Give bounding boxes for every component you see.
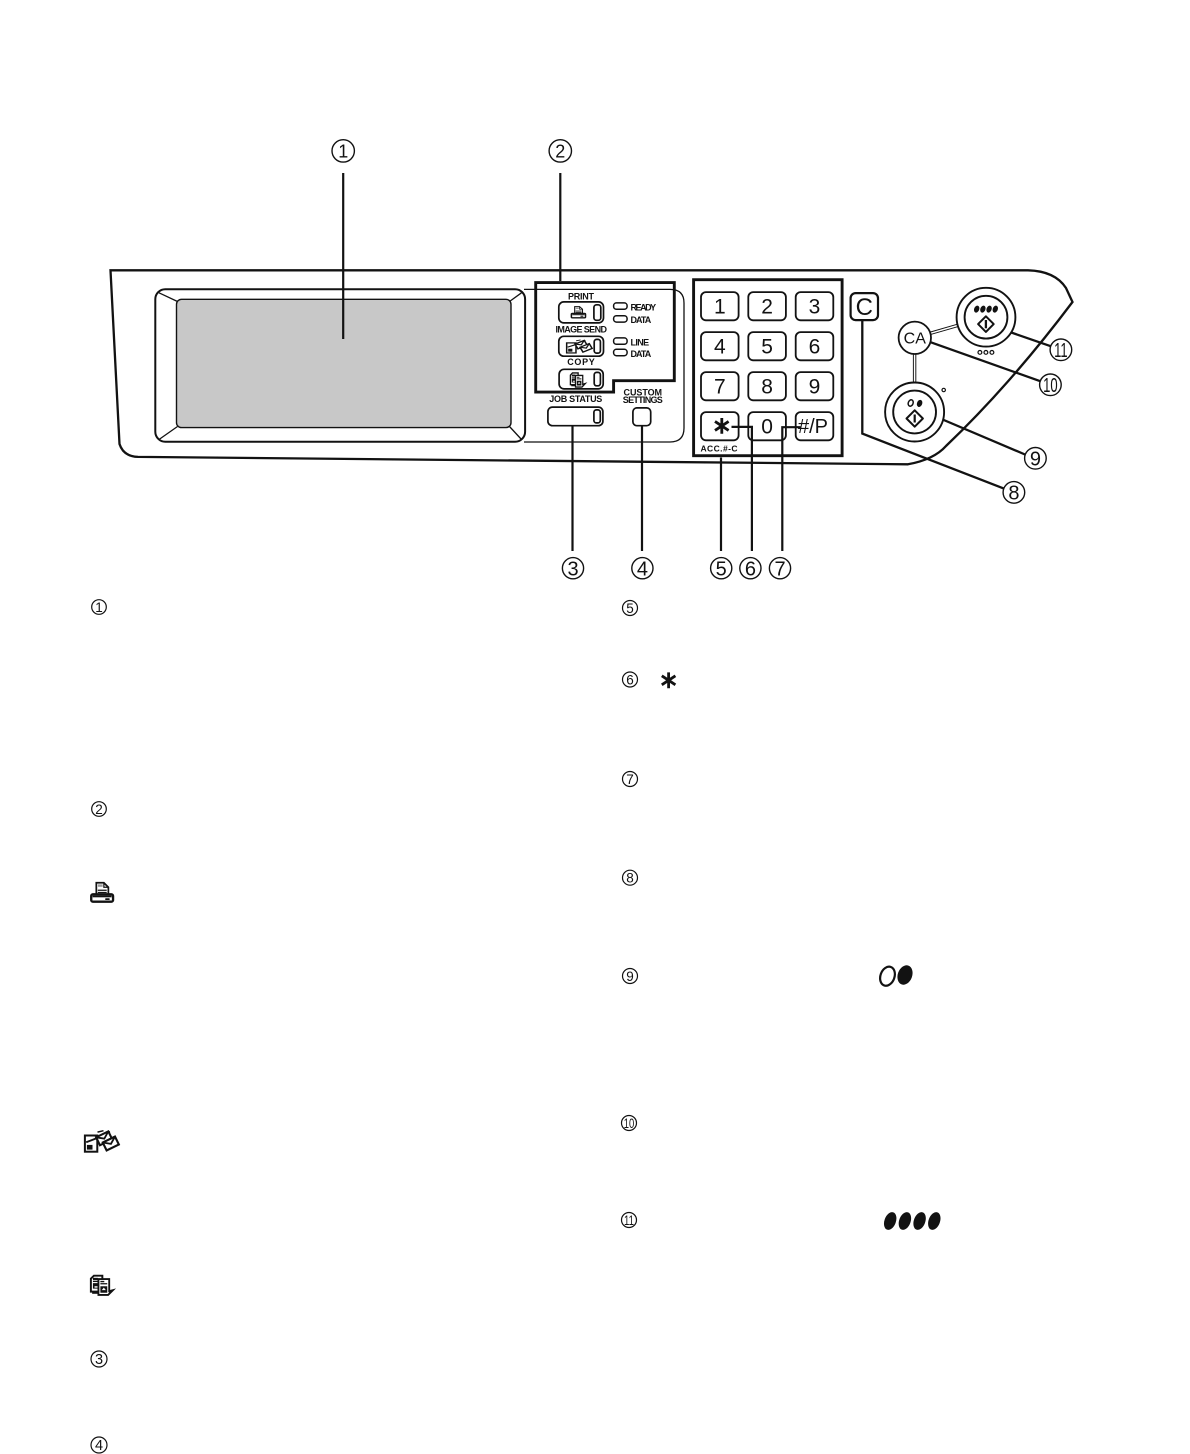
svg-text:4: 4: [714, 336, 726, 359]
svg-text:2: 2: [555, 141, 565, 161]
svg-text:11: 11: [1054, 340, 1068, 362]
svg-text:2: 2: [761, 296, 773, 319]
svg-text:11: 11: [624, 1213, 634, 1228]
svg-text:READY: READY: [631, 302, 657, 312]
svg-text:SETTINGS: SETTINGS: [623, 395, 663, 405]
svg-text:6: 6: [626, 672, 634, 687]
svg-text:3: 3: [809, 296, 821, 319]
svg-text:DATA: DATA: [631, 349, 652, 359]
svg-text:0: 0: [761, 416, 773, 439]
svg-text:5: 5: [716, 558, 727, 580]
svg-text:3: 3: [567, 558, 578, 580]
svg-text:6: 6: [745, 558, 756, 580]
svg-text:7: 7: [626, 772, 634, 787]
svg-text:1: 1: [338, 141, 348, 161]
svg-text:5: 5: [626, 601, 634, 616]
svg-text:5: 5: [761, 336, 773, 359]
svg-text:8: 8: [761, 376, 773, 399]
svg-text:2: 2: [95, 802, 103, 817]
svg-text:7: 7: [774, 558, 785, 580]
svg-text:#/P: #/P: [798, 416, 828, 438]
svg-text:8: 8: [1008, 483, 1019, 505]
svg-text:3: 3: [95, 1352, 103, 1368]
svg-text:CA: CA: [904, 331, 927, 348]
svg-text:7: 7: [714, 376, 726, 399]
svg-text:9: 9: [626, 969, 634, 984]
svg-text:10: 10: [624, 1116, 635, 1131]
svg-text:COPY: COPY: [567, 357, 595, 367]
svg-text:6: 6: [809, 336, 821, 359]
svg-text:DATA: DATA: [631, 315, 652, 325]
svg-text:C: C: [856, 294, 873, 321]
svg-text:4: 4: [95, 1438, 103, 1454]
svg-text:9: 9: [809, 376, 821, 399]
svg-text:9: 9: [1030, 448, 1041, 470]
svg-text:IMAGE SEND: IMAGE SEND: [555, 325, 607, 335]
svg-text:PRINT: PRINT: [568, 291, 595, 301]
svg-text:ACC.#-C: ACC.#-C: [701, 443, 738, 453]
svg-text:JOB STATUS: JOB STATUS: [549, 394, 602, 404]
svg-text:LINE: LINE: [631, 337, 650, 347]
svg-text:4: 4: [637, 558, 648, 580]
svg-text:8: 8: [626, 871, 634, 886]
svg-text:10: 10: [1043, 375, 1058, 397]
svg-text:1: 1: [95, 600, 103, 615]
svg-text:1: 1: [714, 296, 726, 319]
